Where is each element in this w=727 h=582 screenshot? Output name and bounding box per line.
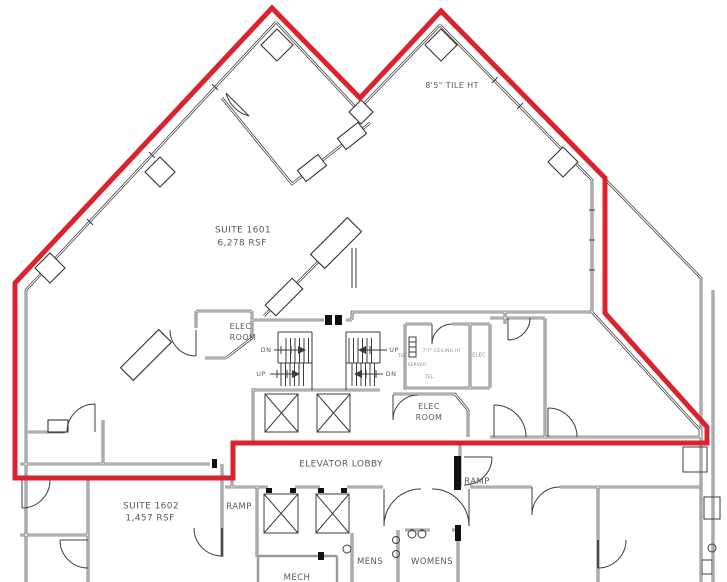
label-tile-height: 8'5" TILE HT bbox=[425, 82, 479, 90]
label-elec-room-right-2: ROOM bbox=[416, 414, 443, 422]
label-server-tel-2: TEL. bbox=[425, 376, 435, 381]
label-suite-1601-name: SUITE 1601 bbox=[215, 227, 271, 236]
label-womens: WOMENS bbox=[411, 558, 453, 567]
elevator-shafts-upper bbox=[265, 394, 350, 432]
label-elec-closet: ELEC bbox=[472, 354, 485, 359]
label-suite-1602-name: SUITE 1602 bbox=[123, 503, 179, 512]
label-stair-right-dn: DN bbox=[386, 371, 397, 378]
elevator-shafts-lower bbox=[264, 488, 349, 533]
stair-right-dn-arrow bbox=[354, 370, 383, 378]
floor-plan-drawing bbox=[0, 0, 727, 582]
label-server-tel-1: TEL. bbox=[398, 355, 408, 360]
label-suite-1601-area: 6,278 RSF bbox=[217, 240, 266, 249]
server-rack bbox=[409, 337, 416, 357]
label-elec-room-left-1: ELEC. bbox=[230, 323, 255, 331]
label-elevator-lobby: ELEVATOR LOBBY bbox=[299, 461, 383, 470]
label-elec-room-left-2: ROOM bbox=[230, 334, 257, 342]
label-server-name: SERVER bbox=[408, 364, 427, 369]
label-stair-left-up: UP bbox=[256, 371, 265, 378]
label-ramp-left: RAMP bbox=[226, 503, 251, 512]
diagonal-partitions bbox=[265, 122, 366, 315]
label-stair-right-up: UP bbox=[389, 347, 398, 354]
stairwell-right bbox=[346, 332, 387, 390]
label-mens: MENS bbox=[357, 558, 383, 567]
stairwell-left bbox=[270, 332, 312, 390]
label-mech: MECH bbox=[284, 574, 311, 582]
label-suite-1602-area: 1,457 RSF bbox=[125, 515, 174, 524]
suite-1601-outline bbox=[15, 8, 707, 478]
furniture-table bbox=[48, 330, 171, 432]
label-ramp-right: RAMP bbox=[464, 478, 489, 487]
floor-plan: 8'5" TILE HT SUITE 1601 6,278 RSF ELEC. … bbox=[0, 0, 727, 582]
label-elec-room-right-1: ELEC bbox=[418, 403, 440, 411]
label-server-ceiling: 7'7" CEILING HT bbox=[422, 350, 461, 355]
label-stair-left-dn: DN bbox=[261, 347, 272, 354]
